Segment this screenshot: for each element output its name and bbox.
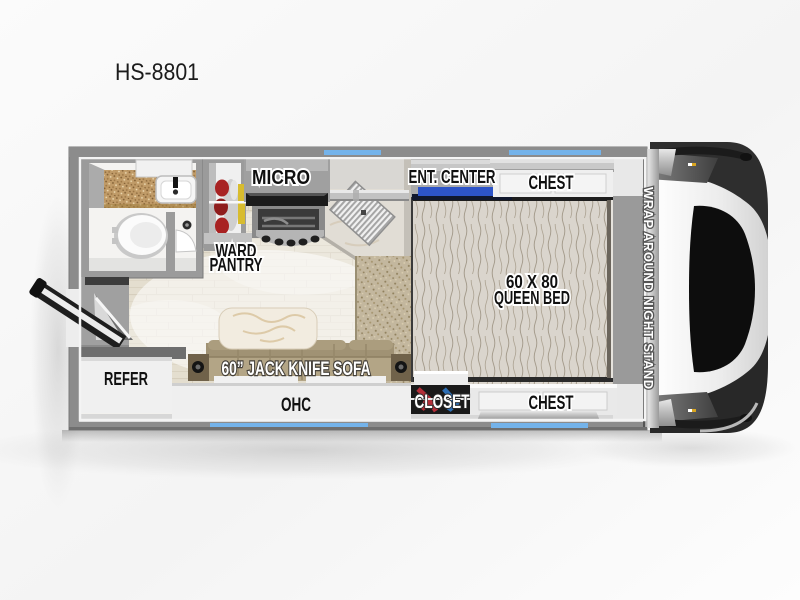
svg-text:60” JACK KNIFE SOFA: 60” JACK KNIFE SOFA [222, 359, 371, 380]
svg-text:ENT. CENTER: ENT. CENTER [409, 167, 496, 187]
svg-text:MICRO: MICRO [252, 167, 310, 189]
svg-text:PANTRY: PANTRY [210, 255, 263, 275]
svg-text:HS-8801: HS-8801 [115, 59, 199, 86]
svg-text:QUEEN BED: QUEEN BED [494, 288, 570, 308]
svg-text:CHEST: CHEST [529, 393, 574, 414]
svg-text:CHEST: CHEST [529, 173, 574, 194]
svg-text:OHC: OHC [281, 395, 311, 416]
svg-text:WRAP AROUND NIGHT STAND: WRAP AROUND NIGHT STAND [641, 187, 656, 390]
svg-text:REFER: REFER [104, 369, 148, 389]
svg-text:CLOSET: CLOSET [415, 392, 470, 413]
